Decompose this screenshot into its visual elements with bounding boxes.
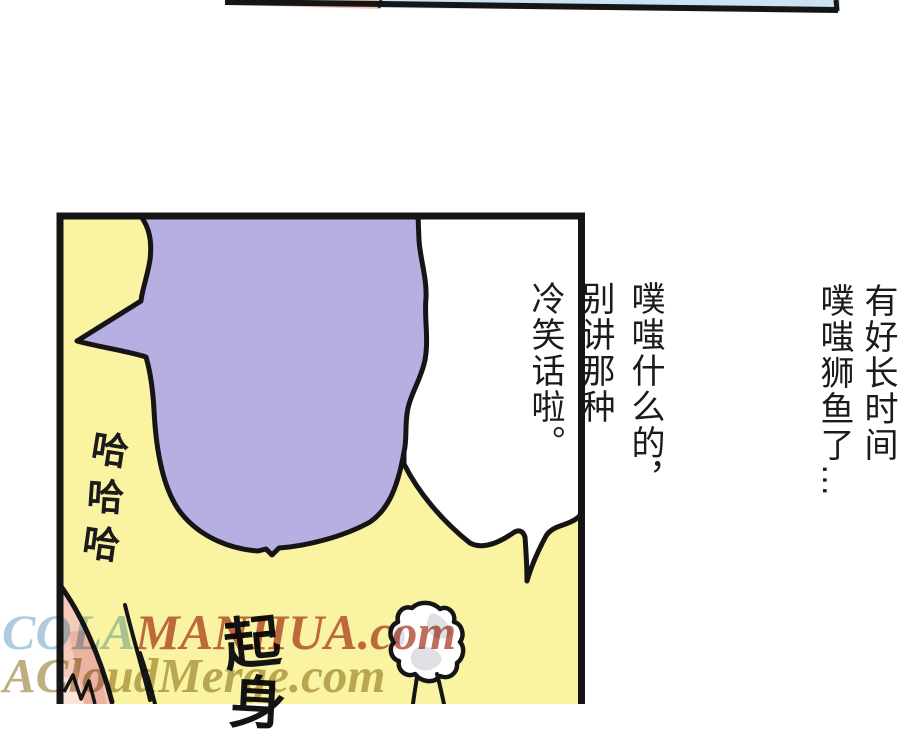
laugh-text: 哈 哈 哈 [84,420,124,561]
watermark-segment: ACloudMerge.com [3,648,385,703]
dialogue-column: 有好长时间 [861,283,895,499]
comic-page: { "page": { "background": "#ffffff", "in… [0,0,900,704]
white-bubble-text: 那就是说， 有好长时间 噗嗤狮鱼了… [443,283,900,499]
previous-panel-right-border [836,0,837,11]
laugh-char: 哈 [84,466,127,516]
laugh-char: 哈 [79,511,125,563]
laugh-char: 哈 [88,417,135,470]
previous-panel-fragment [225,0,840,12]
dialogue-column: 噗嗤狮鱼了… [817,283,851,499]
watermark-acloudmerge: ACloudMerge.com [3,647,385,704]
